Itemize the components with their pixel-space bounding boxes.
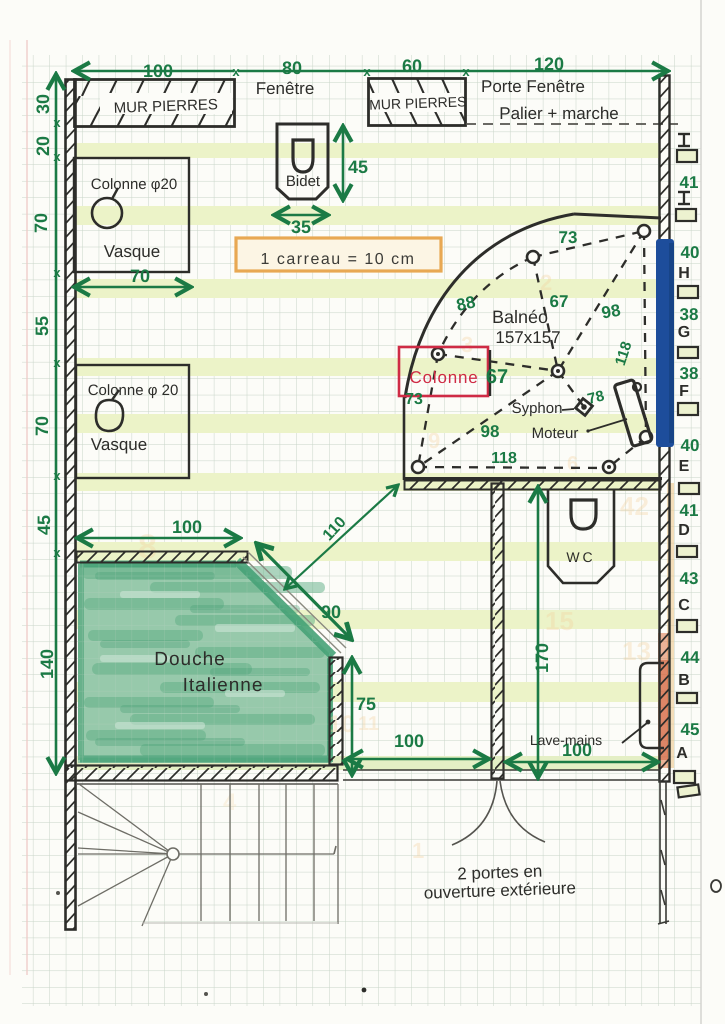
svg-text:170: 170 [532,643,552,673]
svg-text:41: 41 [680,501,699,520]
svg-text:67: 67 [550,292,569,311]
svg-text:118: 118 [491,450,517,467]
svg-text:55: 55 [32,316,52,336]
svg-text:35: 35 [291,217,311,237]
svg-text:67: 67 [486,366,508,388]
svg-text:60: 60 [402,56,422,76]
svg-text:x: x [53,149,61,164]
svg-text:Vasque: Vasque [104,242,160,261]
svg-text:MUR PIERRES: MUR PIERRES [113,96,218,117]
svg-text:x: x [363,64,371,79]
svg-text:Colonne φ 20: Colonne φ 20 [88,382,179,399]
svg-text:100: 100 [394,731,424,751]
svg-text:70: 70 [31,213,51,233]
svg-text:Bidet: Bidet [286,173,321,190]
svg-text:C: C [678,597,690,614]
svg-text:Lave-mains: Lave-mains [530,732,602,748]
svg-text:x: x [53,115,61,130]
svg-text:F: F [679,383,689,400]
svg-text:Fenêtre: Fenêtre [256,79,315,98]
svg-text:40: 40 [681,436,700,455]
svg-text:x: x [53,265,61,280]
svg-text:70: 70 [32,416,52,436]
svg-text:Moteur: Moteur [532,425,579,442]
svg-text:45: 45 [348,157,368,177]
svg-text:80: 80 [282,58,302,78]
svg-text:42: 42 [620,491,649,521]
svg-text:x: x [232,64,240,79]
svg-text:44: 44 [681,648,700,667]
svg-text:70: 70 [130,266,150,286]
svg-text:G: G [678,324,690,341]
svg-text:43: 43 [680,569,699,588]
svg-text:40: 40 [681,243,700,262]
svg-text:88: 88 [455,292,477,315]
svg-text:98: 98 [600,301,622,323]
svg-text:45: 45 [34,515,54,535]
svg-text:75: 75 [356,694,376,714]
svg-text:Syphon: Syphon [512,400,563,417]
svg-text:98: 98 [481,422,500,441]
svg-text:1: 1 [412,838,424,863]
svg-text:38: 38 [680,305,699,324]
svg-text:30: 30 [33,94,53,114]
svg-text:3: 3 [461,332,473,357]
svg-text:I: I [682,133,686,150]
svg-text:x: x [53,468,61,483]
svg-text:I: I [682,191,686,208]
svg-text:90: 90 [321,602,341,622]
svg-text:D: D [678,522,690,539]
svg-text:MUR PIERRES: MUR PIERRES [369,93,467,112]
svg-text:Porte Fenêtre: Porte Fenêtre [481,77,585,96]
svg-text:Italienne: Italienne [183,675,264,696]
svg-text:1 carreau = 10 cm: 1 carreau = 10 cm [261,251,416,268]
svg-text:Douche: Douche [154,649,226,670]
svg-text:73: 73 [405,391,423,408]
svg-text:Palier + marche: Palier + marche [499,104,619,123]
svg-text:13: 13 [622,636,651,666]
svg-text:Colonne: Colonne [410,368,479,387]
svg-text:100: 100 [172,517,202,537]
svg-text:E: E [679,458,690,475]
svg-text:A: A [676,745,688,762]
svg-text:45: 45 [681,720,700,739]
svg-text:H: H [678,265,690,282]
svg-text:73: 73 [559,228,578,247]
svg-text:15: 15 [545,606,574,636]
svg-text:WC: WC [566,549,595,565]
svg-text:x: x [53,545,61,560]
svg-text:20: 20 [33,136,53,156]
svg-text:Balnéo: Balnéo [492,307,548,327]
svg-text:100: 100 [143,61,173,81]
svg-text:B: B [678,672,690,689]
svg-text:120: 120 [534,54,564,74]
svg-text:9: 9 [428,428,440,453]
svg-text:11: 11 [358,713,379,735]
svg-text:6: 6 [567,453,578,475]
svg-text:x: x [53,355,61,370]
svg-text:x: x [462,64,470,79]
svg-text:41: 41 [680,173,699,192]
svg-text:38: 38 [680,364,699,383]
svg-text:Vasque: Vasque [91,435,147,454]
svg-text:Colonne φ20: Colonne φ20 [91,176,177,193]
svg-text:140: 140 [37,649,57,679]
svg-text:157x157: 157x157 [495,328,560,347]
